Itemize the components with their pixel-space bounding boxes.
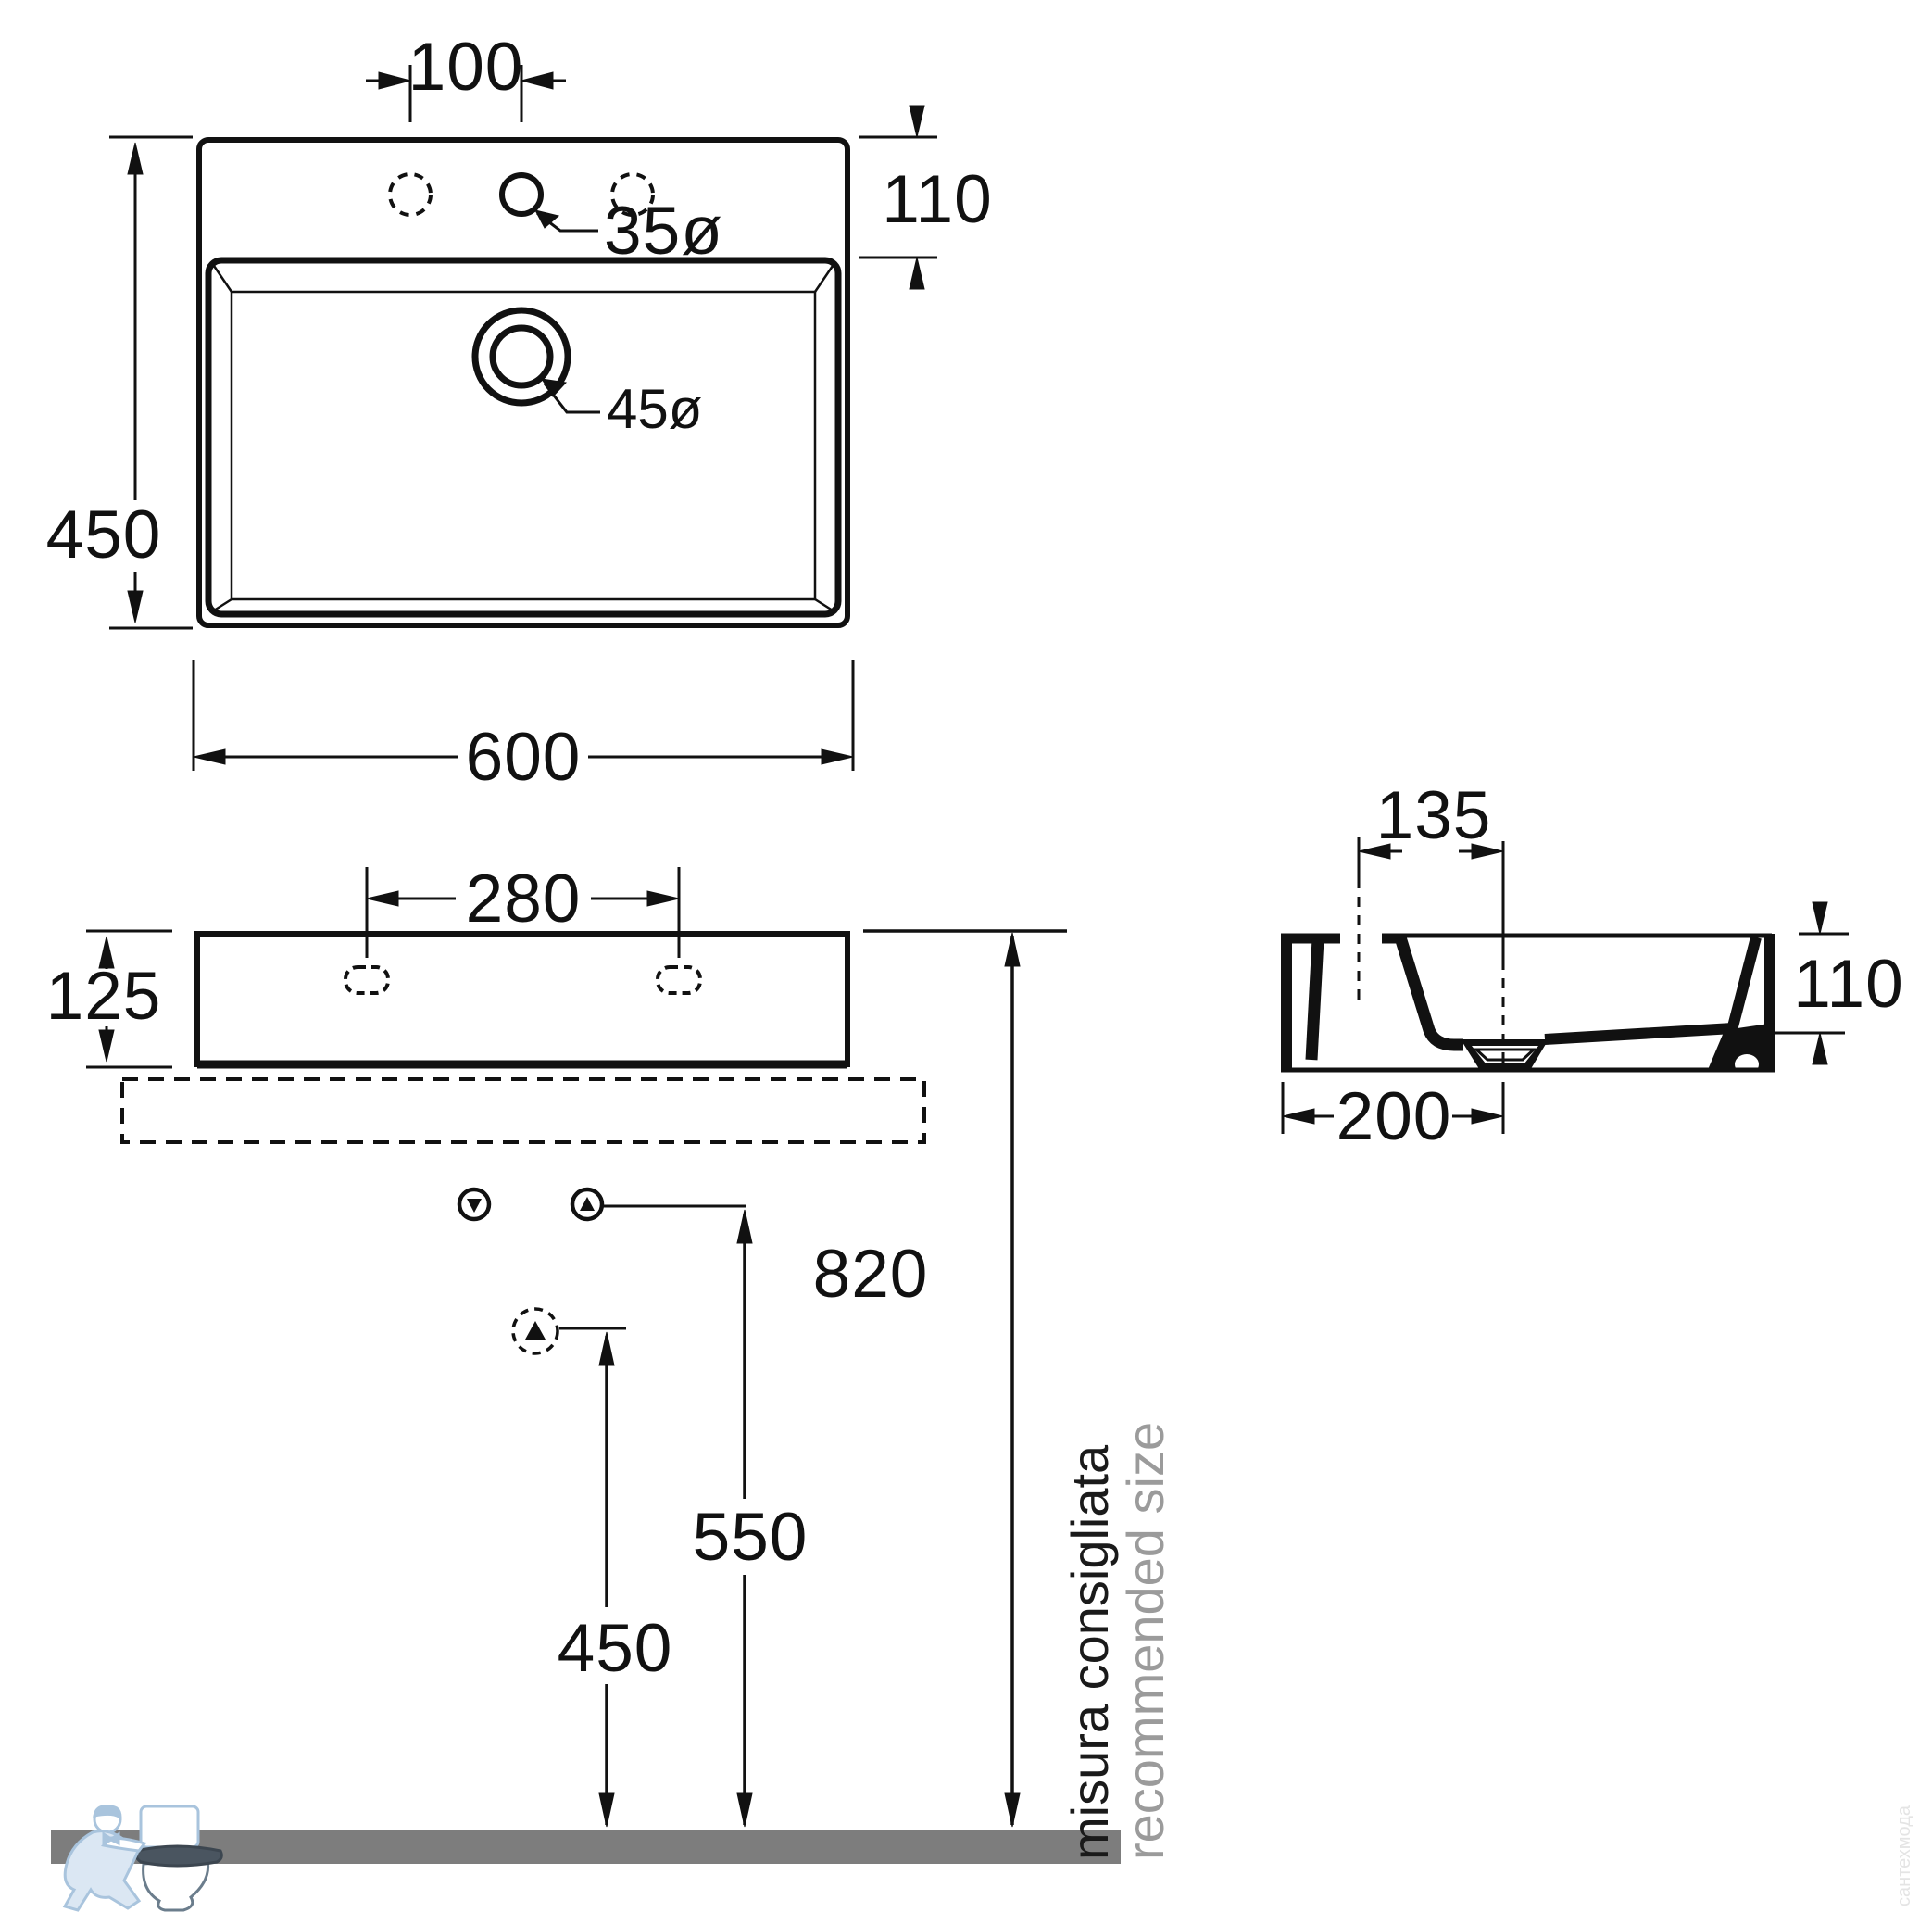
arrowhead-up	[599, 1332, 614, 1365]
arrowhead-down	[1005, 1793, 1020, 1827]
tap-hole-main	[502, 175, 541, 214]
dim-front-height: 125	[46, 931, 172, 1067]
dim-label-110-side: 110	[1793, 947, 1903, 1022]
front-view	[122, 934, 924, 1142]
fixing-hole-left	[345, 967, 388, 993]
arrowhead-up	[910, 258, 924, 289]
arrowhead-left	[367, 891, 398, 906]
dim-label-200: 200	[1336, 1079, 1452, 1154]
site-watermark: сантехмода	[1894, 1805, 1914, 1906]
dim-rim-height: 820	[813, 931, 1067, 1827]
dim-drain-distance: 200	[1283, 1079, 1503, 1154]
dim-label-125: 125	[46, 959, 162, 1034]
arrowhead-left	[1283, 1109, 1314, 1124]
dim-faucet-offset: 100	[366, 30, 566, 122]
arrowhead-right	[379, 72, 410, 89]
dim-label-550: 550	[693, 1500, 809, 1575]
dim-label-110-top: 110	[882, 162, 992, 237]
symbol-supply-connection-icon	[572, 1189, 602, 1219]
installation-symbols	[459, 1189, 746, 1353]
dim-drain-offset: 135	[1359, 778, 1503, 859]
tap-hole-optional-left	[390, 174, 431, 215]
toilet-bowl	[144, 1860, 208, 1910]
dim-label-450-plan: 450	[46, 497, 162, 572]
dim-label-45: 45ø	[607, 378, 702, 440]
arrowhead-down	[128, 591, 143, 623]
arrowhead-left	[521, 72, 553, 89]
fixing-hole-right	[658, 967, 700, 993]
notes: misura consigliata recommended size	[1060, 1422, 1174, 1860]
plumber-logo-watermark	[65, 1806, 221, 1910]
toilet-seat	[136, 1846, 222, 1866]
symbol-drain-connection-icon	[459, 1189, 489, 1219]
basin-rear-slope	[1400, 937, 1463, 1045]
dim-supply-height: 550	[693, 1210, 809, 1827]
bevel-corner-lines	[214, 266, 833, 610]
arrowhead-down	[910, 106, 924, 137]
arrowhead-left	[194, 749, 225, 764]
arrowhead-up	[128, 143, 143, 174]
callout-drain-hole: 45ø	[542, 378, 702, 440]
toilet-tank	[141, 1806, 198, 1847]
dim-label-820: 820	[813, 1237, 929, 1312]
dim-label-35: 35ø	[604, 194, 723, 269]
dim-plan-width: 600	[194, 660, 853, 795]
dim-outlet-height: 450	[558, 1332, 673, 1827]
sink-outline-front	[197, 934, 847, 1064]
recommended-size-outline	[122, 1079, 924, 1142]
symbol-outlet-optional-icon	[513, 1309, 558, 1353]
sink-dimension-drawing: 100 110 450 600 35ø 45ø	[0, 0, 1932, 1912]
arrowhead-down	[1813, 902, 1827, 934]
note-italian: misura consigliata	[1060, 1444, 1119, 1860]
dim-label-600: 600	[466, 720, 582, 795]
basin-bevel	[232, 292, 815, 599]
fixing-slot-opening	[1340, 930, 1382, 948]
dim-label-100: 100	[408, 30, 524, 105]
arrowhead-right	[647, 891, 679, 906]
arrowhead-down	[99, 1030, 114, 1062]
arrowhead-right	[822, 749, 853, 764]
dim-label-135: 135	[1376, 778, 1492, 853]
technical-drawing-page: 100 110 450 600 35ø 45ø	[0, 0, 1932, 1912]
dim-fixing-spacing: 280	[367, 862, 679, 958]
rear-wall-inner	[1311, 939, 1318, 1060]
side-view	[1281, 836, 1775, 1075]
front-wall-inner-slope	[1732, 937, 1756, 1030]
arrowhead-up	[1813, 1033, 1827, 1064]
arrowhead-right	[1472, 1109, 1503, 1124]
dim-plan-height: 450	[46, 137, 193, 628]
basin-bottom-slope	[1545, 1028, 1733, 1039]
drain-hole	[493, 328, 550, 385]
arrowhead-up	[737, 1210, 752, 1243]
dim-deck-depth: 110	[859, 106, 993, 289]
dim-label-450-floor: 450	[558, 1611, 673, 1686]
top-view	[199, 140, 847, 625]
arrowhead-down	[737, 1793, 752, 1827]
dim-label-280: 280	[466, 862, 582, 937]
note-english: recommended size	[1116, 1422, 1174, 1860]
arrowhead-up	[1005, 933, 1020, 966]
arrowhead-down	[599, 1793, 614, 1827]
